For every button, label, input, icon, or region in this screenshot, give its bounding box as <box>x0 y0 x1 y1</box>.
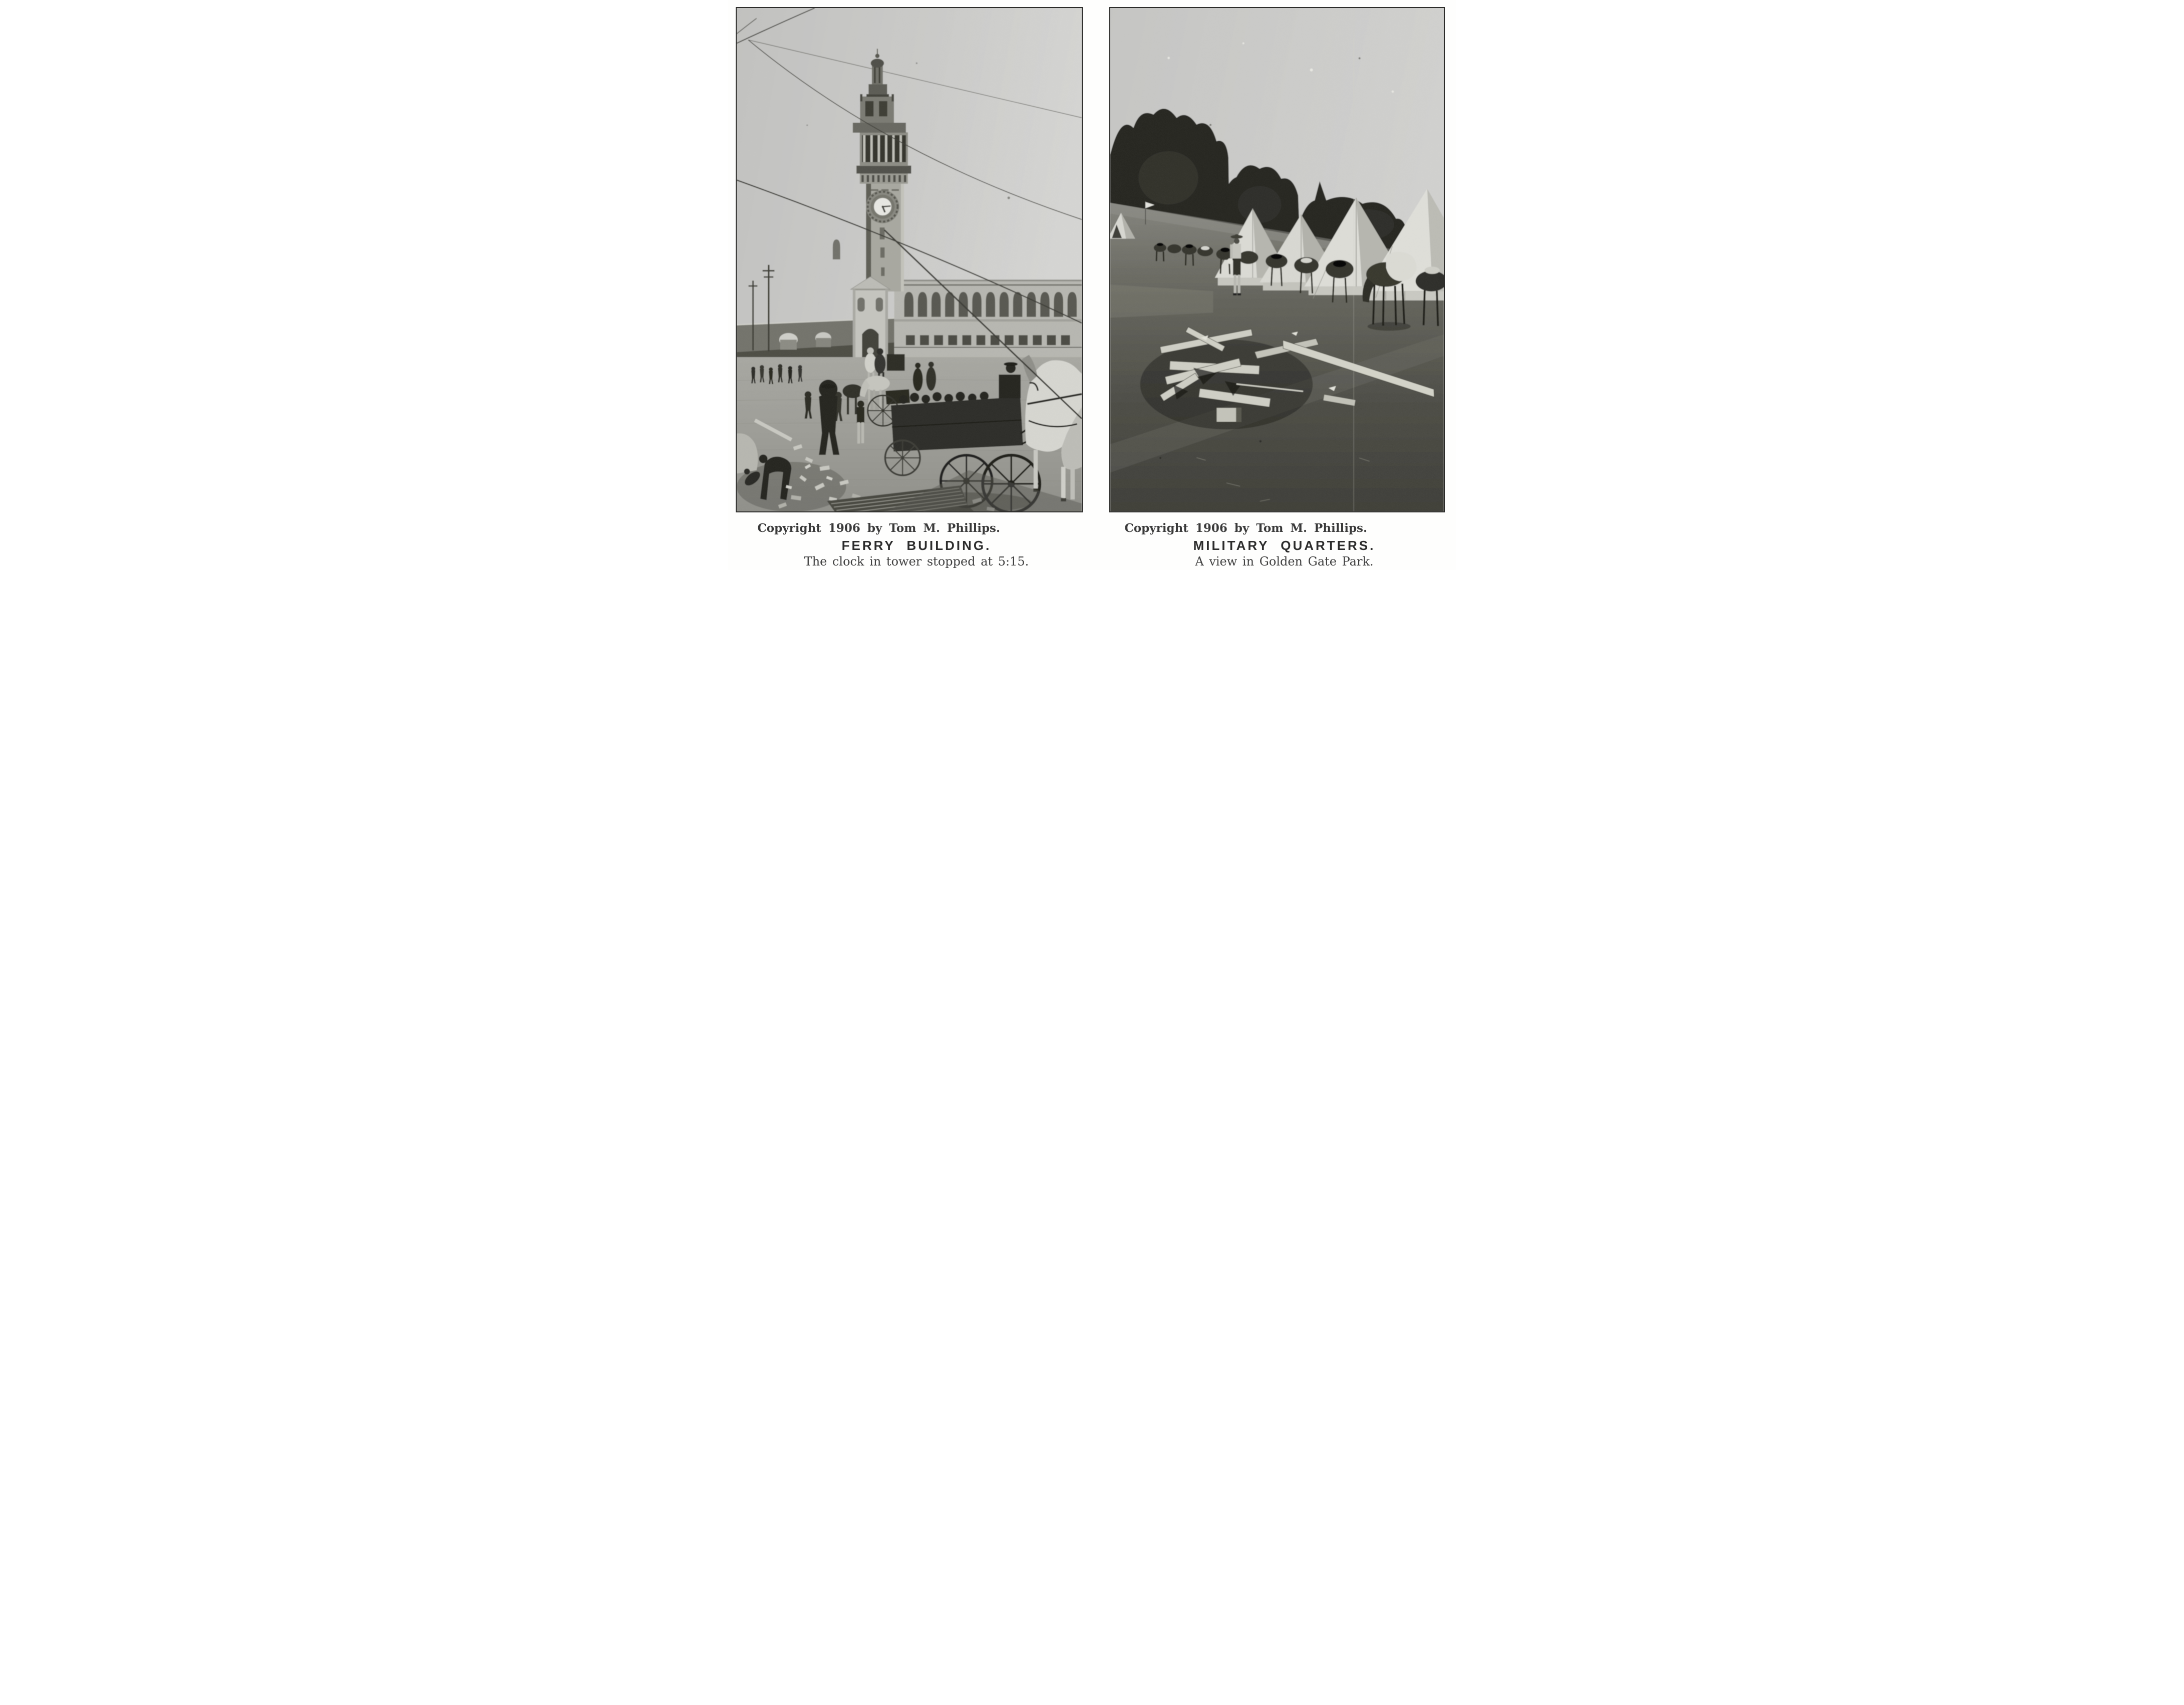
ferry-building-photo <box>736 7 1083 512</box>
ferry-building-scene <box>737 8 1082 511</box>
photo-title: MILITARY QUARTERS. <box>1109 538 1445 553</box>
military-quarters-photo <box>1109 7 1445 512</box>
photo-subtitle: The clock in tower stopped at 5:15. <box>736 555 1083 569</box>
photo-subtitle: A view in Golden Gate Park. <box>1109 555 1445 569</box>
photo-title: FERRY BUILDING. <box>736 538 1083 553</box>
copyright-line: Copyright 1906 by Tom M. Phillips. <box>1109 521 1445 535</box>
plate-military-quarters: Copyright 1906 by Tom M. Phillips. MILIT… <box>1109 7 1445 569</box>
film-grain <box>737 8 1082 511</box>
scanned-page: Copyright 1906 by Tom M. Phillips. FERRY… <box>728 0 1456 570</box>
plate-ferry-building: Copyright 1906 by Tom M. Phillips. FERRY… <box>736 7 1083 569</box>
ferry-building-caption: Copyright 1906 by Tom M. Phillips. FERRY… <box>736 521 1083 569</box>
military-quarters-caption: Copyright 1906 by Tom M. Phillips. MILIT… <box>1109 521 1445 569</box>
military-quarters-scene <box>1110 8 1444 511</box>
copyright-line: Copyright 1906 by Tom M. Phillips. <box>736 521 1083 535</box>
film-grain <box>1110 8 1444 511</box>
